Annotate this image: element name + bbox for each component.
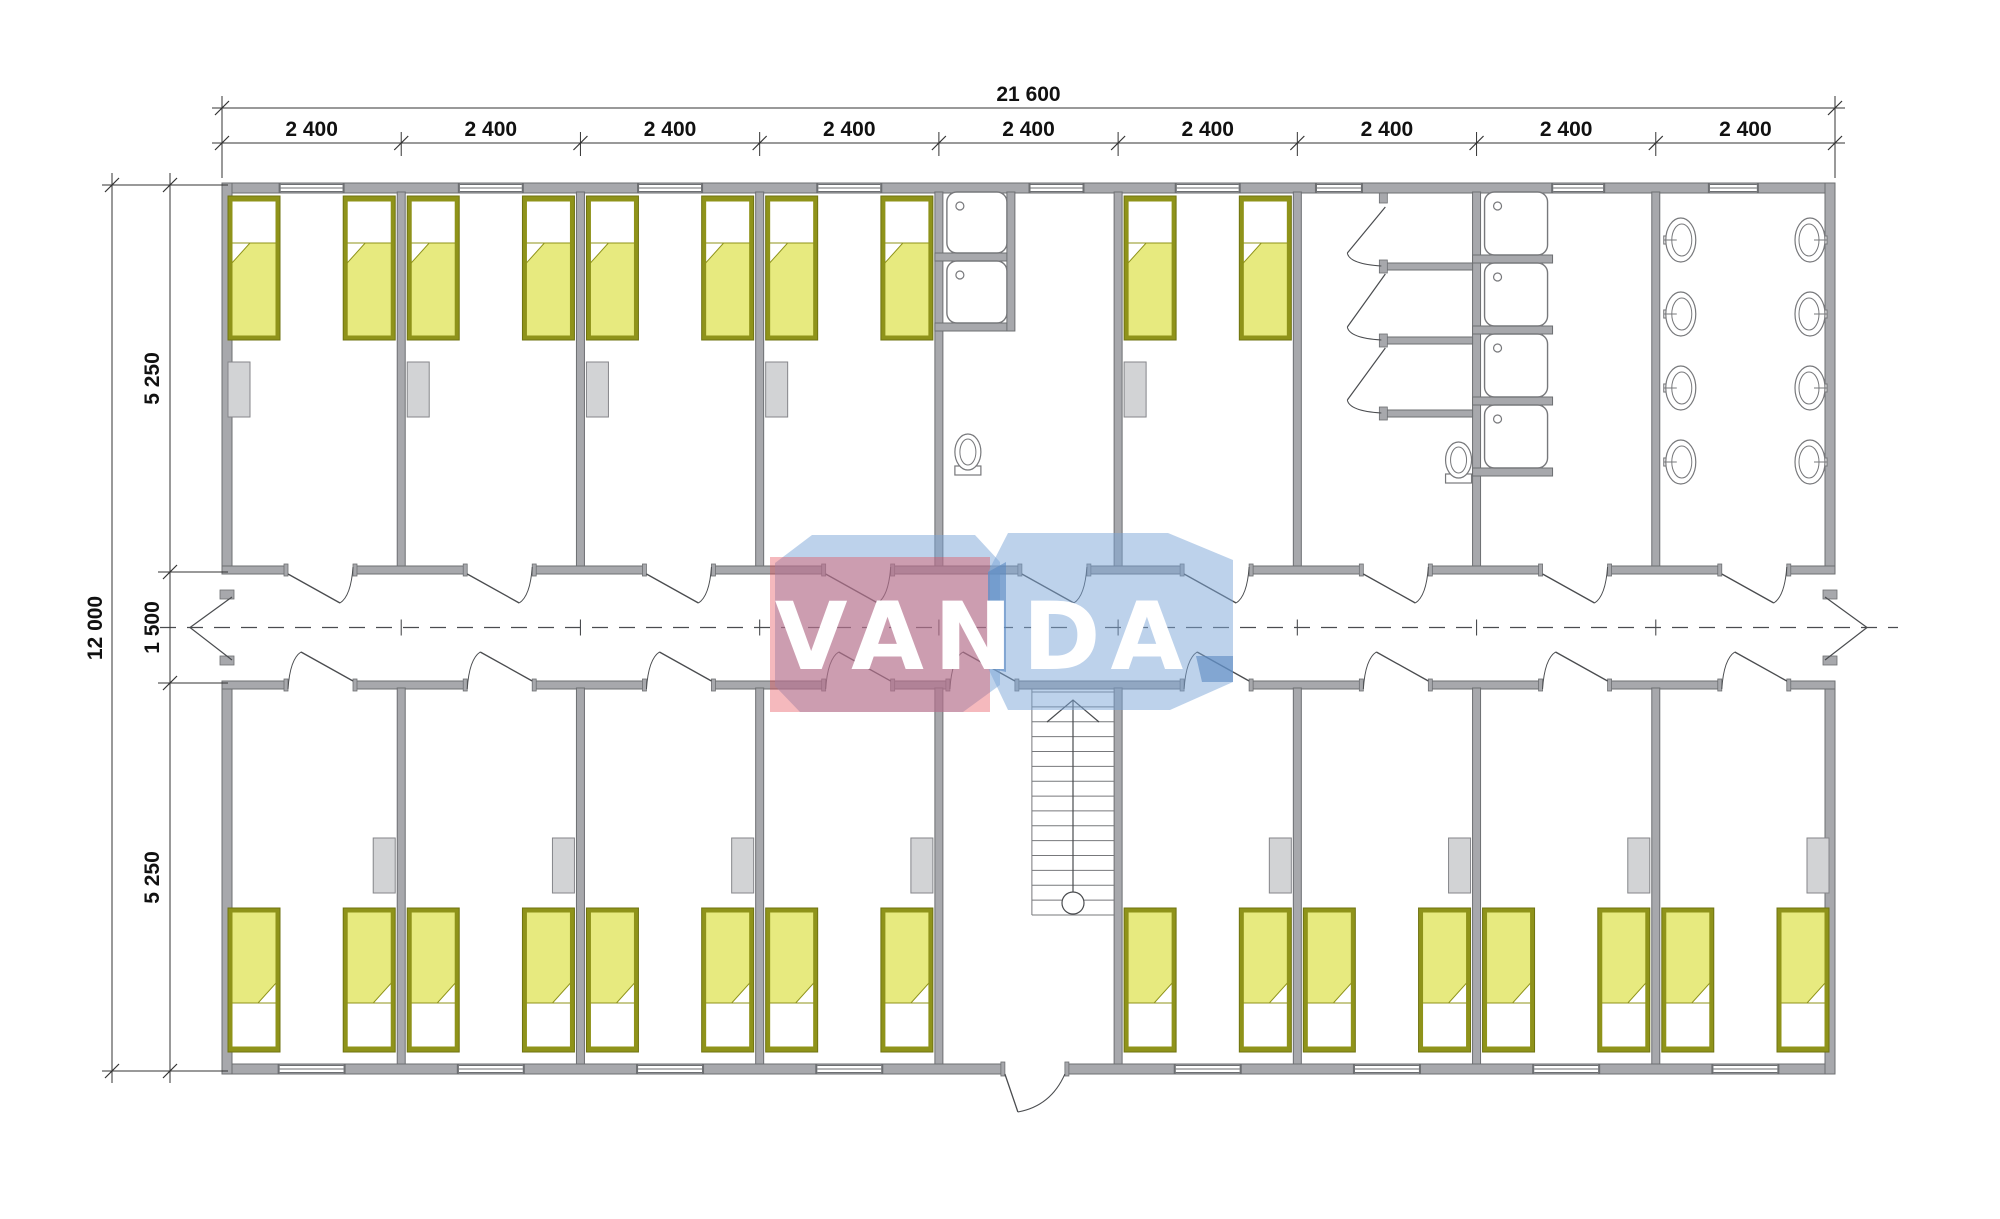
bed [1124,908,1176,1052]
door [1539,564,1612,603]
window [1315,183,1363,193]
window [1551,183,1605,193]
washbasin [1664,440,1696,484]
door [1359,652,1432,691]
bed [522,908,574,1052]
bed [766,196,818,340]
dimension-label-module-width: 2 400 [1181,118,1234,141]
shower-tray [1485,334,1548,397]
bed [586,196,638,340]
window [1353,1064,1421,1074]
dimension-label-module-width: 2 400 [823,118,876,141]
shower-tray [1485,263,1548,326]
door [642,652,715,691]
bed [228,908,280,1052]
dimension-label-module-width: 2 400 [285,118,338,141]
cabinet [766,362,788,417]
bed [1239,196,1291,340]
washbasin [1795,218,1827,262]
door [1718,564,1791,603]
door [284,564,357,603]
dimension-label-total-height: 12 000 [84,596,107,660]
dimension-label-module-width: 2 400 [1540,118,1593,141]
dimension-label-module-width: 2 400 [1002,118,1055,141]
dimension-label-module-width: 2 400 [644,118,697,141]
dimension-label-module-width: 2 400 [465,118,518,141]
cabinet [911,838,933,893]
cabinet [1124,362,1146,417]
door [1539,652,1612,691]
dimension-label-band-height: 1 500 [141,601,164,654]
cabinet [373,838,395,893]
floor-plan-canvas: VANDA21 6002 4002 4002 4002 4002 4002 40… [0,0,2000,1219]
washbasin [1664,292,1696,336]
bed [1662,908,1714,1052]
cabinet [552,838,574,893]
dimension-label-total-width: 21 600 [996,83,1060,106]
bed [1598,908,1650,1052]
cabinet [228,362,250,417]
bed [1124,196,1176,340]
bed [1419,908,1471,1052]
bed [343,196,395,340]
entrance-door [1001,1062,1069,1112]
shower-tray [1485,405,1548,468]
cabinet [407,362,429,417]
cabinet [586,362,608,417]
cabinet [1269,838,1291,893]
dimension-label-module-width: 2 400 [1719,118,1772,141]
bed [702,908,754,1052]
dimension-label-module-width: 2 400 [1361,118,1414,141]
door [642,564,715,603]
toilet [955,434,981,475]
bed [522,196,574,340]
window [636,1064,704,1074]
window [458,183,524,193]
bed [586,908,638,1052]
dimension-label-band-height: 5 250 [141,851,164,904]
window [278,1064,346,1074]
shower-tray [947,192,1007,253]
bed [407,196,459,340]
window [279,183,345,193]
watermark-logo: VANDA [770,533,1233,712]
staircase [1032,689,1114,915]
bed [1483,908,1535,1052]
door [284,652,357,691]
window [1175,183,1241,193]
bed [766,908,818,1052]
window [457,1064,525,1074]
bed [228,196,280,340]
window [816,183,882,193]
cabinet [1807,838,1829,893]
window [815,1064,883,1074]
washbasin [1795,292,1827,336]
watermark-text: VANDA [775,583,1194,692]
window [1174,1064,1242,1074]
door [463,652,536,691]
shower-tray [1485,192,1548,255]
bed [407,908,459,1052]
washbasin [1795,440,1827,484]
bed [702,196,754,340]
door [1718,652,1791,691]
shower-tray [947,261,1007,323]
cabinet [732,838,754,893]
bed [1777,908,1829,1052]
cabinet [1449,838,1471,893]
bed [1239,908,1291,1052]
floor-plan: VANDA21 6002 4002 4002 4002 4002 4002 40… [0,0,2000,1219]
wc-stalls [1347,193,1472,420]
window [1029,183,1085,193]
washbasin [1795,366,1827,410]
washbasin [1664,366,1696,410]
door [463,564,536,603]
bed [881,908,933,1052]
bed [343,908,395,1052]
window [1708,183,1759,193]
window [637,183,703,193]
dimension-label-band-height: 5 250 [141,352,164,405]
window [1532,1064,1600,1074]
toilet [1446,442,1472,483]
door [1359,564,1432,603]
cabinet [1628,838,1650,893]
bed [1303,908,1355,1052]
window [1711,1064,1779,1074]
washbasin [1664,218,1696,262]
bed [881,196,933,340]
